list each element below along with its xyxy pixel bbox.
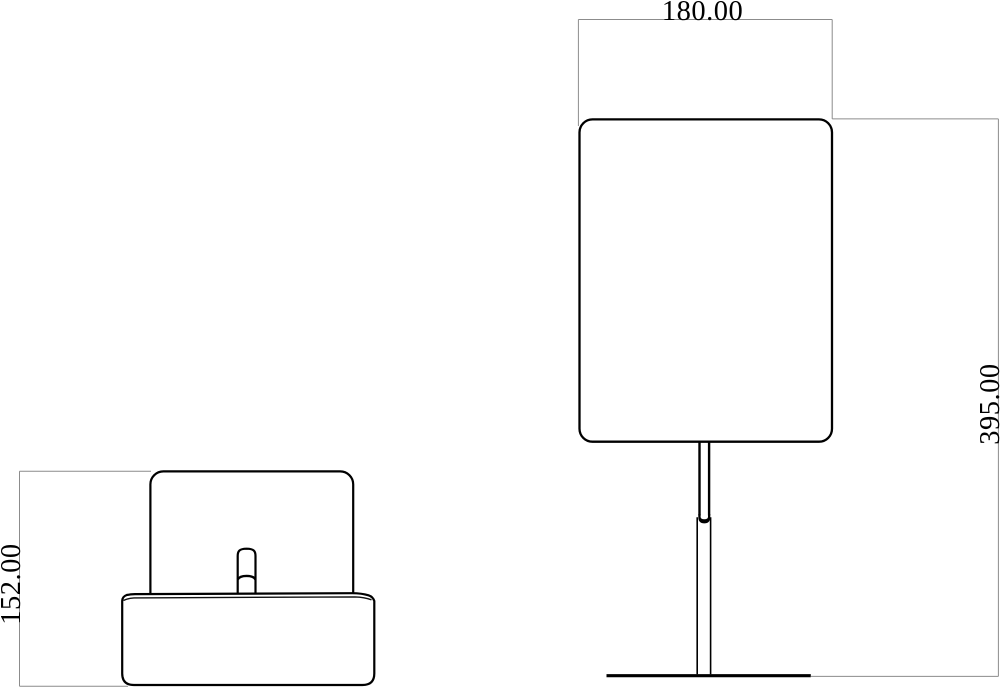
svg-text:395.00: 395.00	[975, 363, 1000, 444]
svg-text:152.00: 152.00	[0, 543, 27, 624]
svg-text:180.00: 180.00	[662, 0, 743, 27]
